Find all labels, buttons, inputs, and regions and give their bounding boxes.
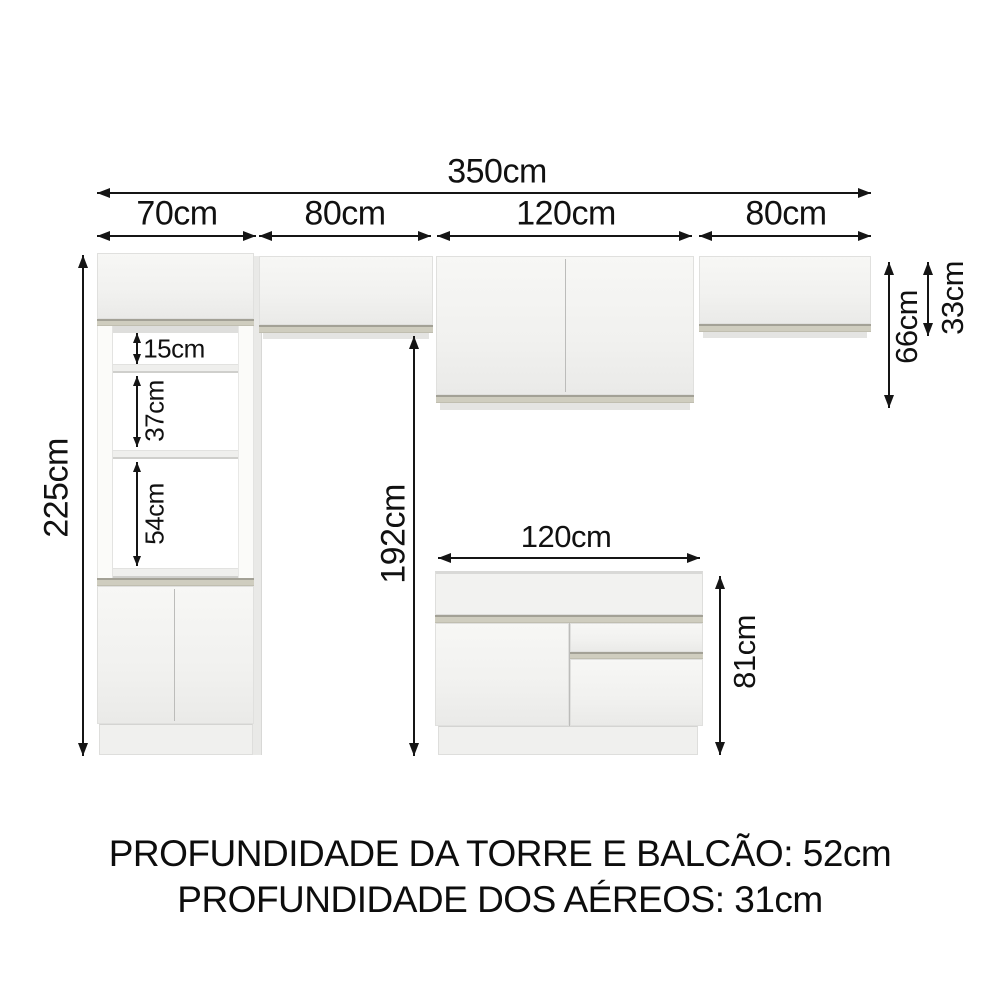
- aereo-left-width-label: 80cm: [304, 195, 385, 234]
- aereo-center-width-arrow: [437, 235, 692, 237]
- tower-lower-door-seam: [174, 589, 175, 721]
- depth-notes: PROFUNDIDADE DA TORRE E BALCÃO: 52cm PRO…: [0, 831, 1000, 923]
- balcao-height-arrow: [719, 576, 721, 755]
- tower-plinth: [99, 724, 253, 755]
- aereo-left-width-arrow: [259, 235, 431, 237]
- balcao-width-label: 120cm: [521, 519, 612, 555]
- aereo-left-door: [259, 256, 433, 325]
- aereo-right-height-arrow: [927, 262, 929, 336]
- tower-shelf-2: [113, 450, 238, 459]
- shelf-gap-middle-label: 37cm: [140, 380, 171, 442]
- balcao-drawer-strip: [570, 652, 703, 659]
- shelf-gap-top-label: 15cm: [143, 334, 205, 365]
- aereo-right-edge-strip: [699, 324, 871, 332]
- aereo-center-width-label: 120cm: [516, 195, 616, 234]
- shelf-gap-bottom-arrow: [136, 462, 138, 566]
- aereo-right-underside: [703, 332, 867, 338]
- tower-shelf-top-shadow: [113, 326, 238, 333]
- aereo-right-height-label: 33cm: [935, 261, 971, 335]
- kitchen-dimensions-diagram: 350cm 70cm 80cm 120cm 80cm 225cm 15cm 37…: [0, 0, 1000, 1000]
- total-width-label: 350cm: [447, 153, 547, 192]
- depth-note-aereos: PROFUNDIDADE DOS AÉREOS: 31cm: [0, 877, 1000, 923]
- tower-upper-edge-strip: [97, 319, 254, 326]
- tower-shelf-1: [113, 364, 238, 373]
- balcao-left-door: [435, 623, 569, 726]
- tower-counter-strip: [97, 578, 254, 586]
- tower-shelf-right-wall: [238, 326, 254, 578]
- balcao-open-top: [435, 571, 703, 615]
- balcao-plinth: [438, 726, 698, 755]
- aereo-right-width-arrow: [699, 235, 871, 237]
- tower-lower-cabinet-doors: [97, 586, 254, 724]
- tower-height-label: 225cm: [38, 438, 77, 538]
- tower-height-arrow: [82, 255, 84, 756]
- shelf-gap-top-arrow: [136, 333, 138, 364]
- tower-shelf-bottom: [113, 568, 238, 578]
- aereo-right-width-label: 80cm: [745, 195, 826, 234]
- balcao-height-label: 81cm: [727, 615, 763, 689]
- tower-width-label: 70cm: [136, 195, 217, 234]
- tower-width-arrow: [97, 235, 256, 237]
- tower-upper-cabinet-door: [97, 253, 254, 319]
- shelf-gap-middle-arrow: [136, 376, 138, 447]
- balcao-right-door: [570, 659, 703, 726]
- shelf-gap-bottom-label: 54cm: [140, 483, 171, 545]
- aereo-right-door: [699, 256, 871, 324]
- aereo-center-door-seam: [565, 259, 566, 392]
- balcao-top-strip: [435, 615, 703, 623]
- depth-note-tower-balcao: PROFUNDIDADE DA TORRE E BALCÃO: 52cm: [0, 831, 1000, 877]
- aereo-center-height-label: 66cm: [889, 290, 925, 364]
- balcao-drawer: [570, 623, 703, 652]
- aereo-center-edge-strip: [436, 395, 694, 403]
- tower-shelf-left-wall: [97, 326, 113, 578]
- aereo-left-edge-strip: [259, 325, 433, 333]
- aereo-left-underside: [263, 333, 429, 339]
- balcao-width-arrow: [438, 557, 700, 559]
- aereo-center-underside: [440, 403, 690, 410]
- clearance-height-label: 192cm: [375, 484, 414, 584]
